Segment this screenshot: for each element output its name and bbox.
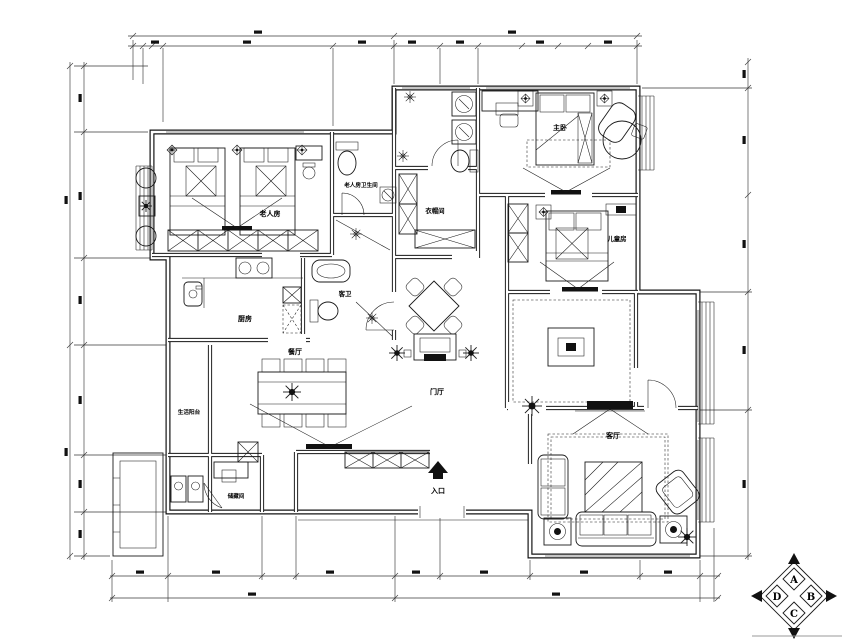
plant-icon — [140, 200, 152, 212]
armchair — [653, 467, 702, 516]
console-table — [404, 334, 466, 361]
toilet — [338, 151, 356, 175]
toilet-tank — [336, 142, 358, 150]
basin — [192, 482, 200, 490]
elder-bathroom: 老人房卫生间 — [336, 142, 396, 250]
compass-letter-a: A — [789, 575, 798, 586]
faucet-icon — [404, 91, 416, 103]
room-label-elder-bathroom: 老人房卫生间 — [343, 181, 378, 189]
elder-bedroom: 老人房 — [136, 145, 322, 251]
kids-room: 儿童房 — [508, 204, 636, 292]
room-label-guest-bath: 客卫 — [338, 289, 352, 298]
compass-letter-c: C — [790, 609, 798, 620]
room-label-kids-room: 儿童房 — [606, 234, 627, 243]
wall-light-icon — [232, 145, 242, 155]
sofa-two-seat — [538, 455, 568, 519]
game-table — [409, 281, 459, 331]
door-leader — [540, 262, 614, 289]
wardrobe — [415, 230, 475, 248]
single-bed-1 — [170, 148, 225, 235]
guest-bathroom: 客卫 — [310, 260, 394, 336]
toilet — [318, 302, 338, 320]
plant-icon — [678, 528, 696, 546]
laundry-room — [397, 91, 478, 172]
single-bed-2 — [240, 148, 295, 235]
study-room — [513, 300, 676, 416]
bedside-lamp-icon — [539, 208, 548, 217]
entrance-label: 入口 — [430, 487, 445, 495]
chair — [404, 314, 425, 335]
dining-room: 餐厅 — [250, 347, 412, 449]
room-label-cloakroom: 衣帽间 — [425, 206, 444, 215]
room-label-storage: 储藏间 — [227, 492, 245, 500]
chair — [442, 276, 463, 297]
column — [238, 442, 258, 462]
extension-lines — [74, 40, 752, 602]
floor-plan-canvas: 老人房 老人房卫生间 衣帽间 — [0, 0, 842, 640]
chair — [442, 314, 463, 335]
desk-corner — [296, 146, 322, 179]
room-label-elder-bedroom: 老人房 — [259, 209, 281, 218]
plant-icon — [522, 396, 542, 416]
faucet-icon — [397, 150, 409, 162]
compass-rose: A B C D — [751, 553, 842, 639]
wall-light-icon — [297, 145, 307, 155]
centerpiece-plant-icon — [283, 383, 301, 401]
compass-letter-d: D — [773, 592, 782, 603]
shaft — [283, 287, 301, 333]
room-label-foyer: 门厅 — [430, 387, 444, 396]
bedside-lamp-icon — [600, 94, 609, 103]
shoe-cabinet — [345, 452, 429, 468]
door-arc — [342, 193, 364, 215]
room-label-dining: 餐厅 — [287, 347, 302, 356]
sofa-three-seat — [576, 512, 656, 546]
wardrobe — [168, 230, 318, 251]
plant-icon — [463, 345, 479, 361]
kids-bed — [546, 211, 608, 281]
room-label-service-balcony: 生活阳台 — [178, 408, 201, 416]
wardrobe — [508, 204, 528, 262]
chair — [404, 276, 425, 297]
bathtub — [312, 260, 350, 282]
living-room: 客厅 — [538, 401, 702, 546]
wall-light-icon — [167, 145, 177, 155]
door-arc — [204, 483, 222, 508]
basin — [175, 482, 183, 490]
cloakroom: 衣帽间 — [399, 174, 475, 248]
rug — [548, 434, 668, 522]
room-label-master-bedroom: 主卧 — [553, 123, 567, 132]
door-leader — [573, 409, 648, 434]
plant-icon — [389, 345, 405, 361]
entrance-arrow-icon — [428, 461, 448, 473]
door-leader — [523, 168, 610, 192]
tv — [587, 401, 633, 409]
shower-corner — [336, 220, 390, 250]
room-label-kitchen: 厨房 — [238, 314, 252, 323]
kitchen: 厨房 — [182, 258, 303, 333]
toilet-tank — [310, 300, 318, 322]
compass-letter-b: B — [807, 592, 815, 603]
kitchen-sink — [184, 282, 202, 306]
floor-drain-icon — [366, 312, 378, 324]
floor-drain-icon — [350, 228, 362, 240]
rug — [527, 140, 610, 167]
chair — [500, 114, 518, 127]
floor-plan-drawing: 老人房 老人房卫生间 衣帽间 — [0, 0, 842, 640]
door-leader — [250, 404, 412, 447]
side-table-lamp-left — [544, 518, 571, 545]
planter-balcony — [113, 453, 163, 556]
wardrobe — [399, 174, 417, 234]
dining-table — [258, 372, 346, 414]
desk — [482, 91, 538, 111]
side-table-lamp-right — [660, 516, 687, 543]
master-bedroom: 主卧 — [482, 91, 648, 195]
room-label-living: 客厅 — [605, 431, 620, 440]
coffee-table — [585, 462, 642, 512]
foyer: 门厅 — [389, 276, 479, 396]
bedside-lamp-icon — [521, 94, 530, 103]
